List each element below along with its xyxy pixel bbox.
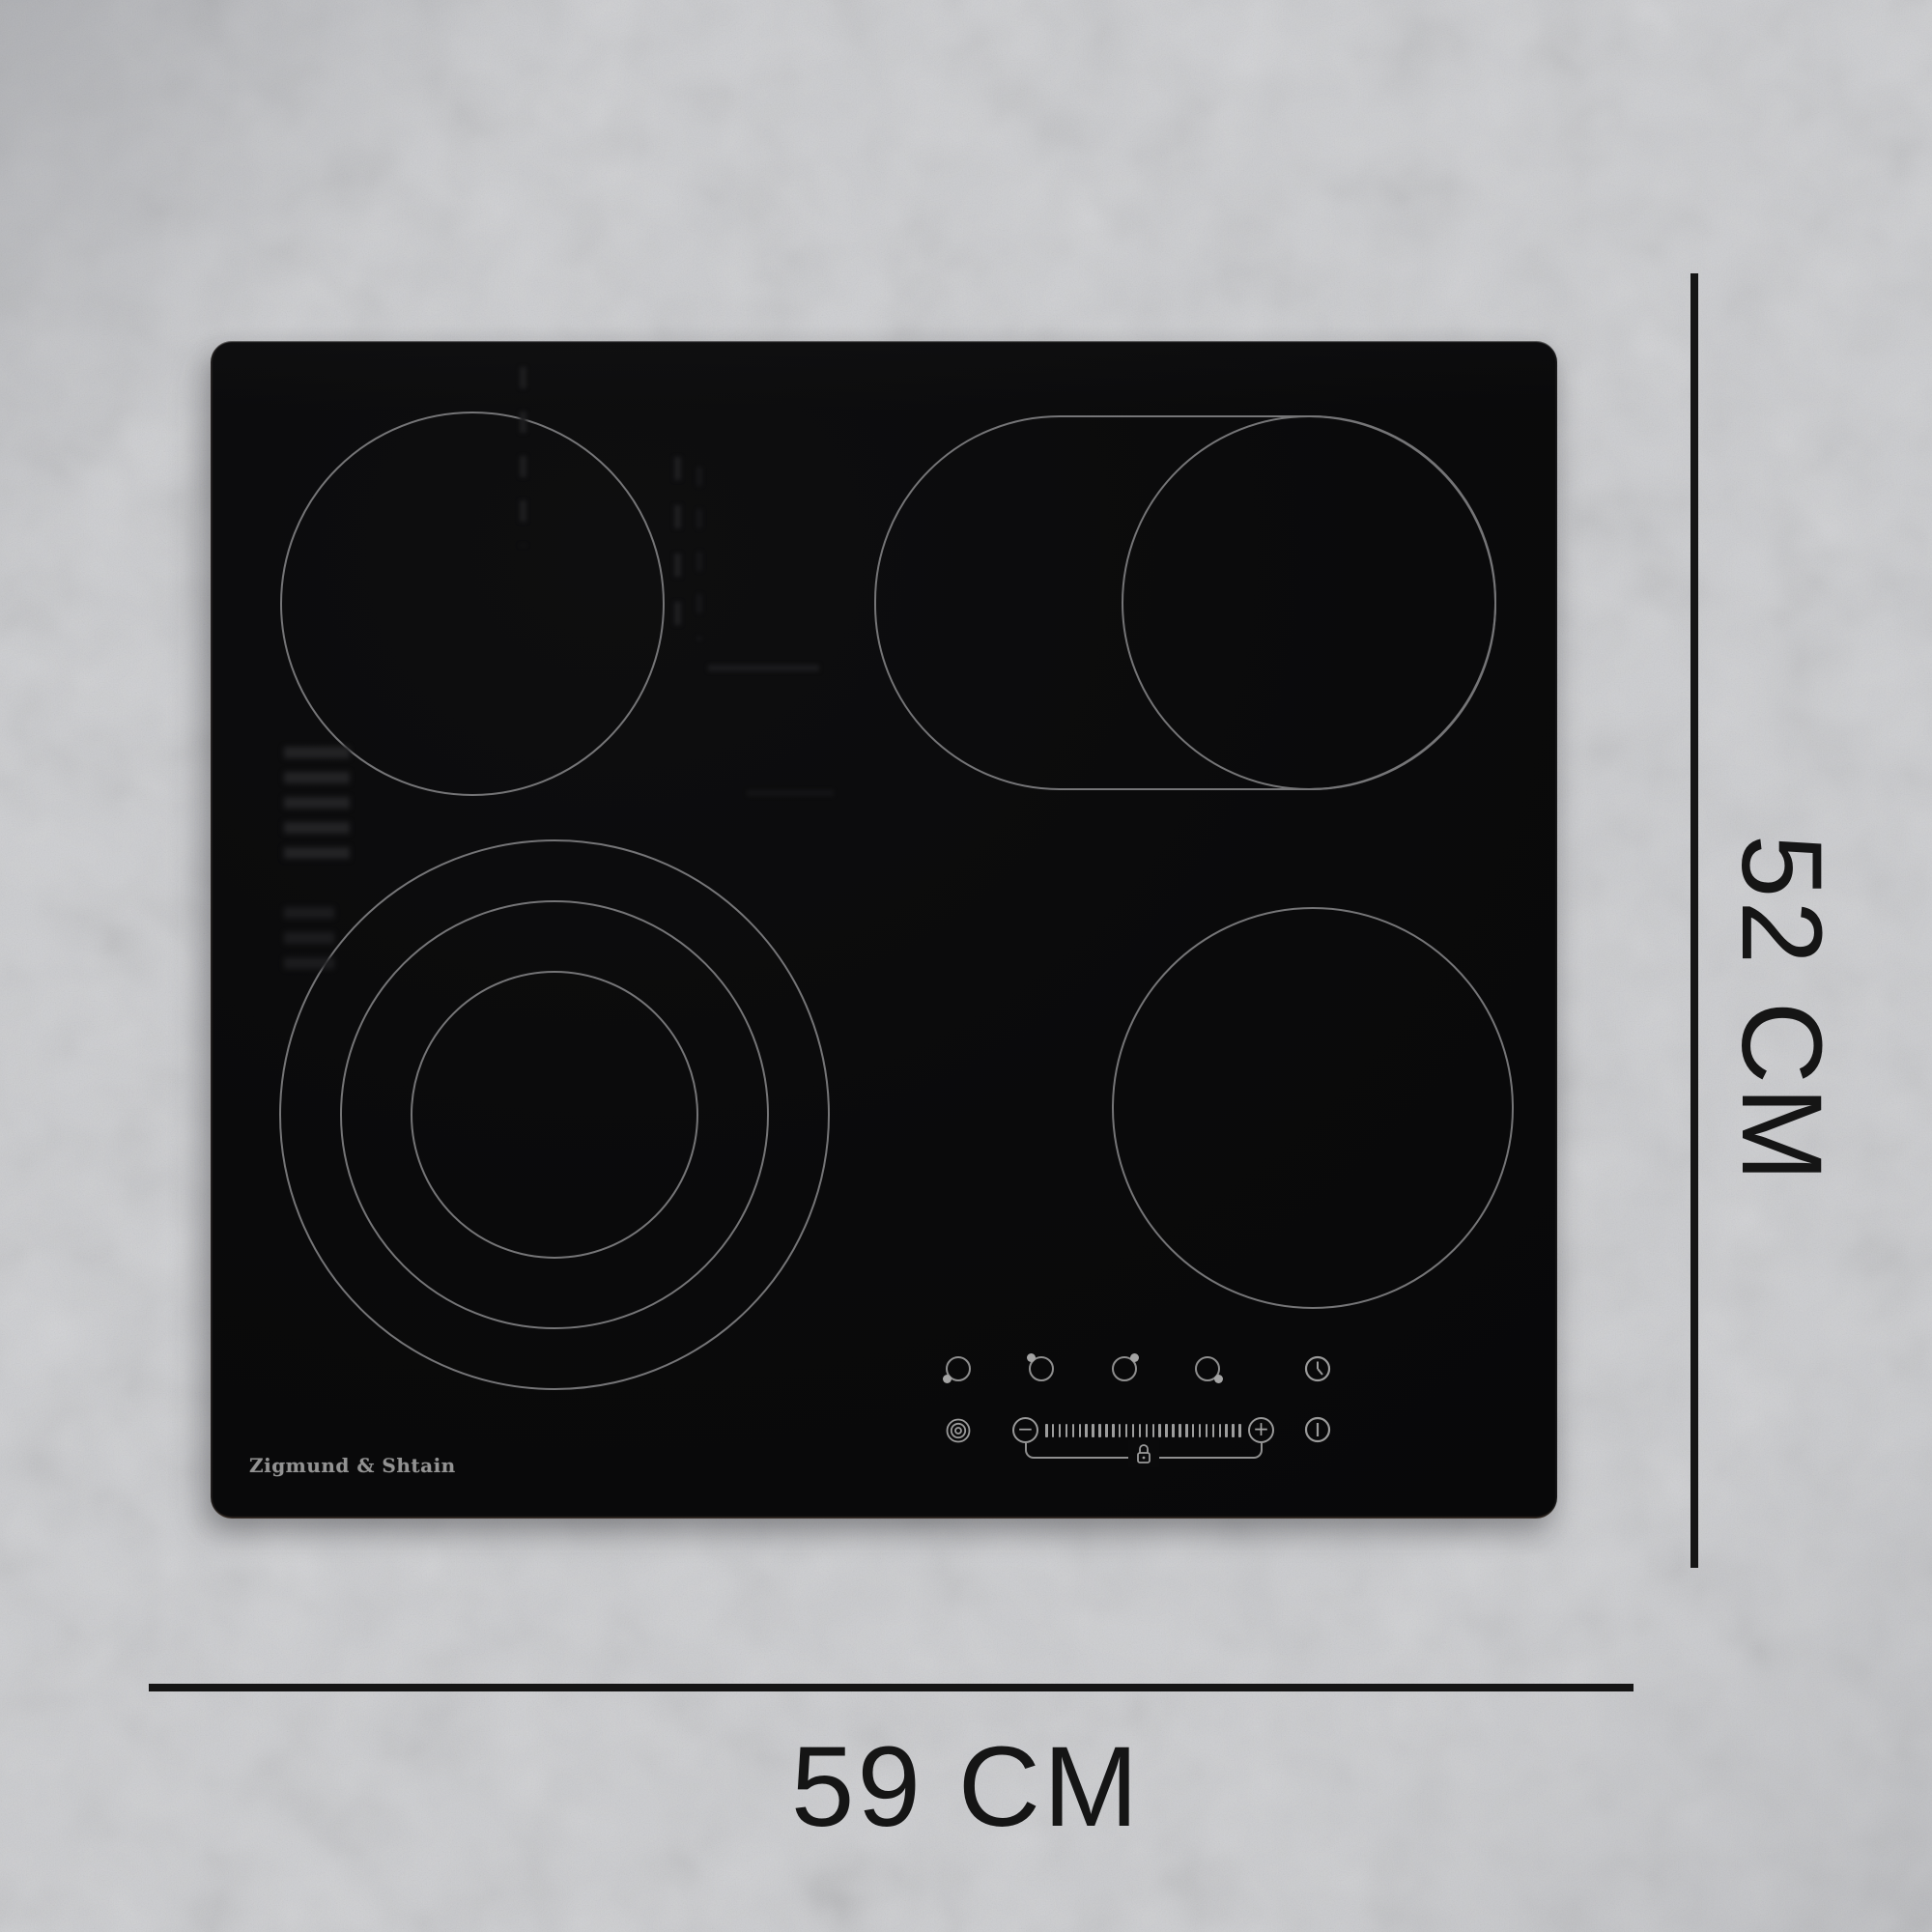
brand-logo-text: Zigmund & Shtain bbox=[249, 1454, 456, 1477]
slider-tick bbox=[1085, 1424, 1088, 1437]
burner-select-front-left-icon bbox=[946, 1356, 971, 1381]
slider-tick bbox=[1059, 1424, 1062, 1437]
burner-select-back-right-icon bbox=[1112, 1356, 1137, 1381]
burner-selector-row bbox=[946, 1356, 1220, 1381]
slider-tick bbox=[1139, 1424, 1142, 1437]
window-reflection bbox=[696, 467, 702, 640]
slider-tick bbox=[1158, 1424, 1161, 1437]
window-reflection bbox=[747, 790, 834, 796]
minus-button: − bbox=[1012, 1417, 1038, 1443]
burner-zone-front-right bbox=[1112, 907, 1514, 1309]
width-dimension-label: 59 CM bbox=[676, 1721, 1256, 1853]
slider-tick bbox=[1125, 1424, 1128, 1437]
ceramic-cooktop: Zigmund & Shtain − + bbox=[211, 341, 1557, 1519]
product-photo-scene: Zigmund & Shtain − + bbox=[0, 0, 1932, 1932]
padlock-icon bbox=[1128, 1440, 1159, 1467]
slider-tick bbox=[1098, 1424, 1101, 1437]
clock-icon bbox=[1304, 1355, 1331, 1382]
slider-tick bbox=[1146, 1424, 1149, 1437]
slider-tick bbox=[1219, 1424, 1222, 1437]
power-icon bbox=[1304, 1416, 1331, 1443]
slider-tick bbox=[1052, 1424, 1055, 1437]
slider-tick bbox=[1212, 1424, 1215, 1437]
slider-tick bbox=[1232, 1424, 1235, 1437]
plus-button: + bbox=[1248, 1417, 1274, 1443]
slider-tick bbox=[1165, 1424, 1168, 1437]
slider-tick bbox=[1179, 1424, 1181, 1437]
concentric-rings-icon bbox=[946, 1418, 971, 1443]
window-reflection bbox=[708, 665, 819, 671]
slider-tick bbox=[1119, 1424, 1122, 1437]
slider-tick bbox=[1045, 1424, 1048, 1437]
slider-tick bbox=[1065, 1424, 1068, 1437]
slider-tick bbox=[1238, 1424, 1241, 1437]
height-dimension-label: 52 CM bbox=[1716, 720, 1847, 1299]
slider-tick bbox=[1105, 1424, 1108, 1437]
burner-zone-back-left bbox=[280, 412, 665, 796]
slider-tick bbox=[1132, 1424, 1135, 1437]
slider-tick bbox=[1172, 1424, 1175, 1437]
power-slider-ticks bbox=[1045, 1424, 1241, 1437]
slider-tick bbox=[1192, 1424, 1195, 1437]
slider-tick bbox=[1225, 1424, 1228, 1437]
slider-tick bbox=[1112, 1424, 1115, 1437]
width-dimension-line bbox=[149, 1684, 1634, 1691]
blind-slats-reflection bbox=[284, 907, 334, 971]
slider-tick bbox=[1185, 1424, 1188, 1437]
burner-select-back-left-icon bbox=[1029, 1356, 1054, 1381]
burner-zone-front-left-inner-ring bbox=[411, 971, 698, 1259]
height-dimension-line bbox=[1690, 273, 1698, 1568]
slider-tick bbox=[1199, 1424, 1202, 1437]
blind-slats-reflection bbox=[284, 747, 350, 863]
burner-zone-back-right-inner-circle bbox=[1122, 415, 1496, 790]
slider-tick bbox=[1152, 1424, 1155, 1437]
window-reflection bbox=[674, 457, 681, 645]
slider-tick bbox=[1206, 1424, 1208, 1437]
slider-tick bbox=[1092, 1424, 1094, 1437]
slider-tick bbox=[1079, 1424, 1082, 1437]
burner-select-front-right-icon bbox=[1195, 1356, 1220, 1381]
slider-tick bbox=[1072, 1424, 1075, 1437]
